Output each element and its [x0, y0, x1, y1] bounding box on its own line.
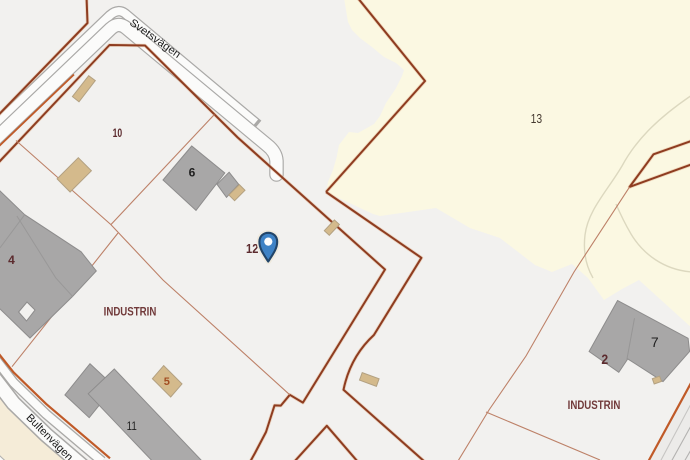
svg-text:2: 2: [601, 352, 608, 367]
svg-text:6: 6: [189, 166, 196, 180]
svg-text:5: 5: [164, 376, 170, 388]
svg-text:13: 13: [531, 112, 543, 126]
svg-text:INDUSTRIN: INDUSTRIN: [568, 400, 621, 412]
svg-text:10: 10: [113, 126, 123, 140]
svg-text:12: 12: [246, 241, 258, 256]
svg-text:11: 11: [127, 419, 137, 433]
svg-text:INDUSTRIN: INDUSTRIN: [104, 307, 157, 319]
svg-text:7: 7: [651, 335, 659, 350]
svg-text:4: 4: [8, 253, 15, 267]
